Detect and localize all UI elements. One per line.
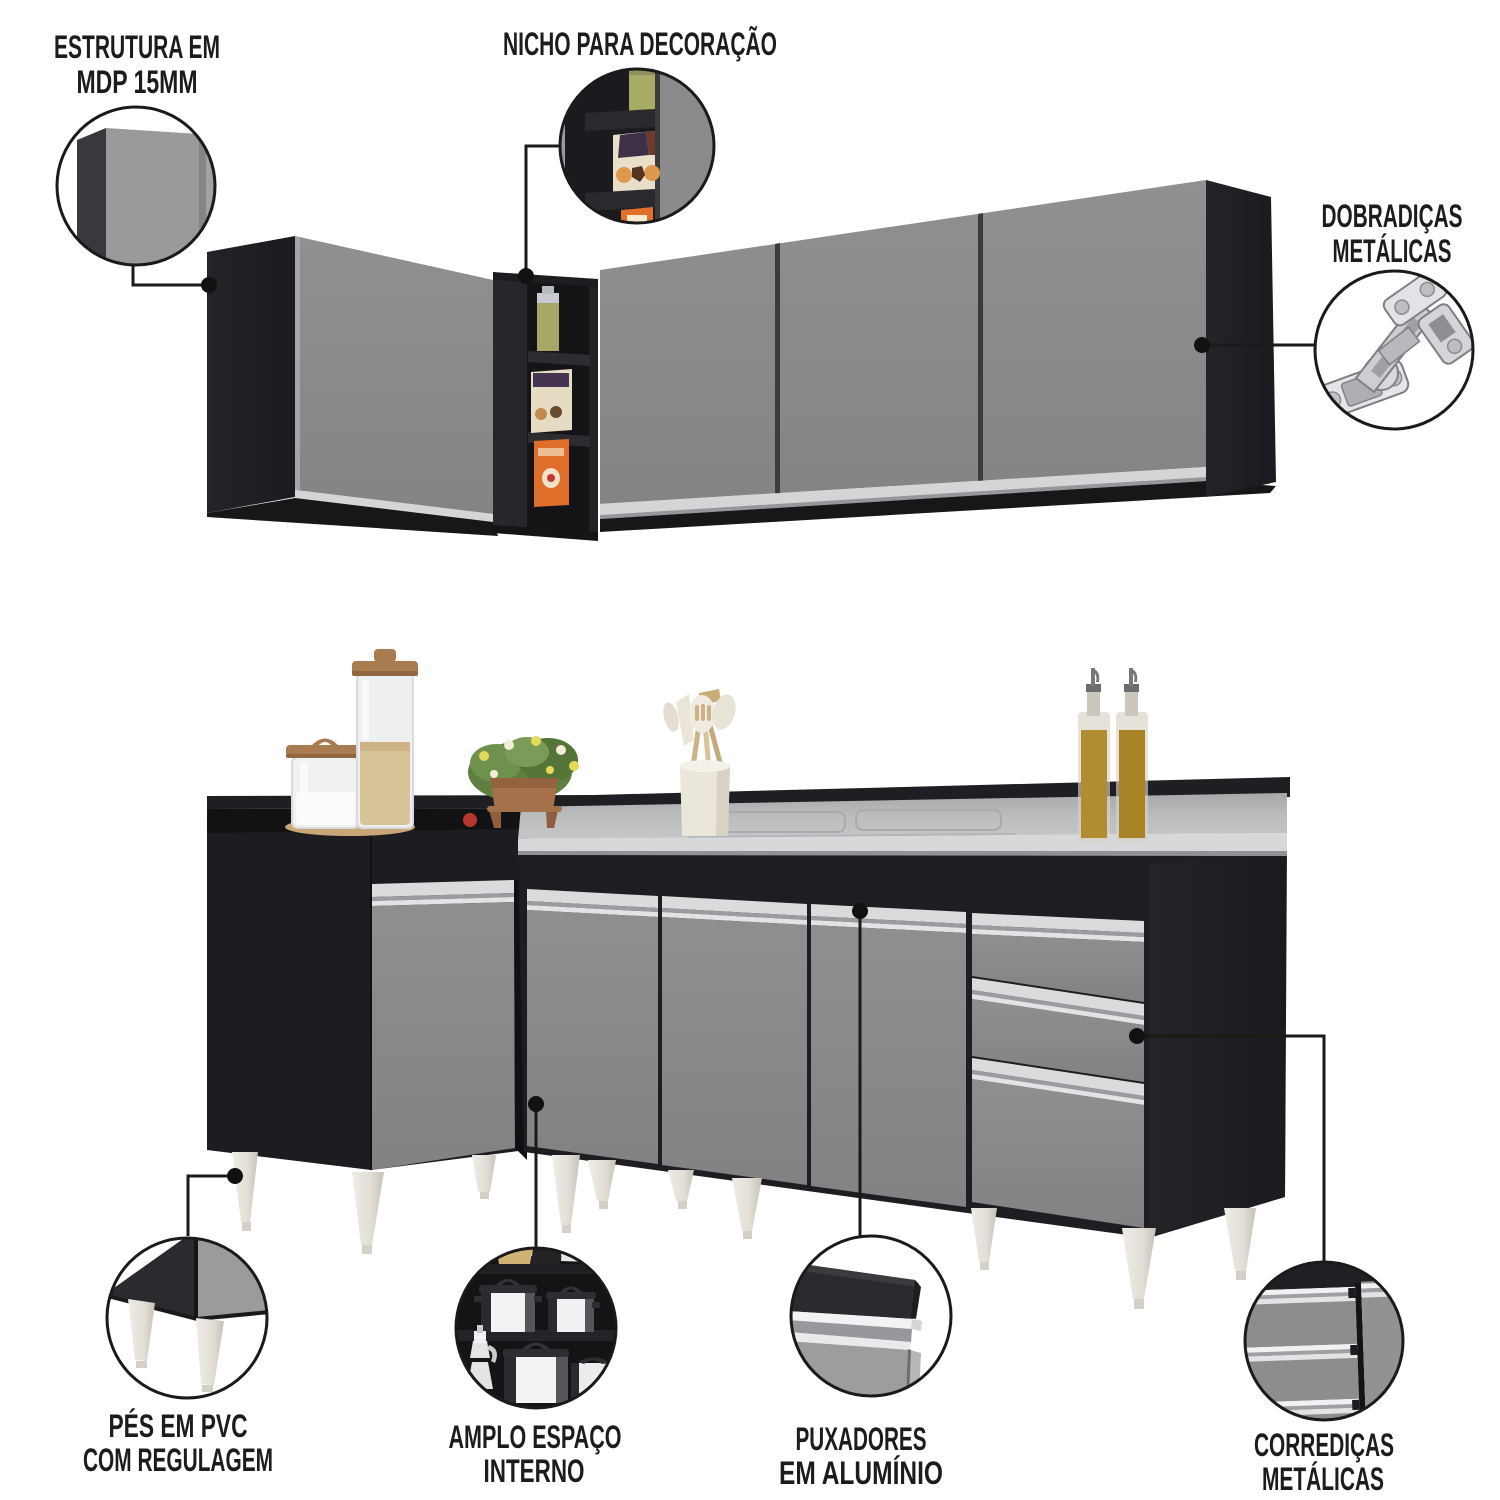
svg-text:PÉS EM PVC: PÉS EM PVC xyxy=(109,1408,248,1444)
svg-text:DOBRADIÇAS: DOBRADIÇAS xyxy=(1322,198,1463,234)
svg-text:INTERNO: INTERNO xyxy=(484,1453,585,1489)
svg-text:EM ALUMÍNIO: EM ALUMÍNIO xyxy=(779,1455,943,1491)
svg-text:AMPLO ESPAÇO: AMPLO ESPAÇO xyxy=(449,1419,622,1455)
svg-text:NICHO PARA DECORAÇÃO: NICHO PARA DECORAÇÃO xyxy=(503,26,777,62)
svg-text:MDP 15MM: MDP 15MM xyxy=(77,64,198,100)
svg-text:CORREDIÇAS: CORREDIÇAS xyxy=(1254,1427,1394,1463)
svg-text:ESTRUTURA EM: ESTRUTURA EM xyxy=(54,29,220,65)
svg-text:METÁLICAS: METÁLICAS xyxy=(1333,233,1452,269)
svg-text:METÁLICAS: METÁLICAS xyxy=(1262,1461,1384,1497)
svg-text:COM REGULAGEM: COM REGULAGEM xyxy=(83,1442,273,1478)
svg-text:PUXADORES: PUXADORES xyxy=(796,1421,927,1457)
